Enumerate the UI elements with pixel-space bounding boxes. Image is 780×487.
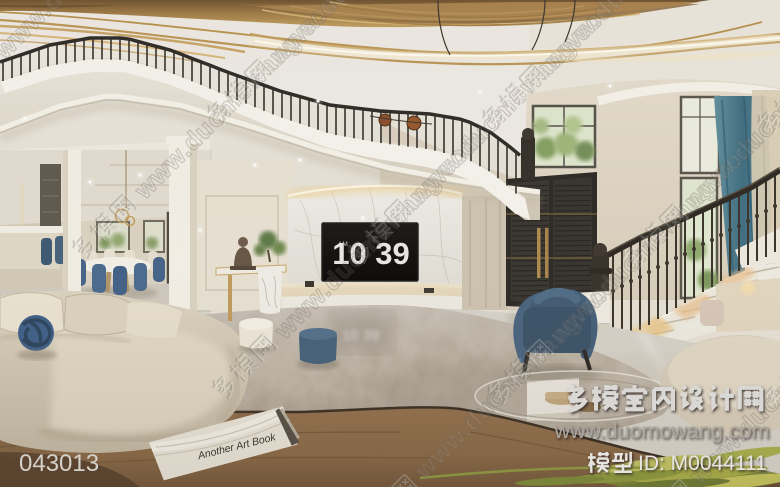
svg-text:ID: M0044111: ID: M0044111: [638, 452, 767, 475]
svg-text:043013: 043013: [19, 450, 99, 477]
svg-text:www.duomowang.com: www.duomowang.com: [553, 419, 769, 443]
